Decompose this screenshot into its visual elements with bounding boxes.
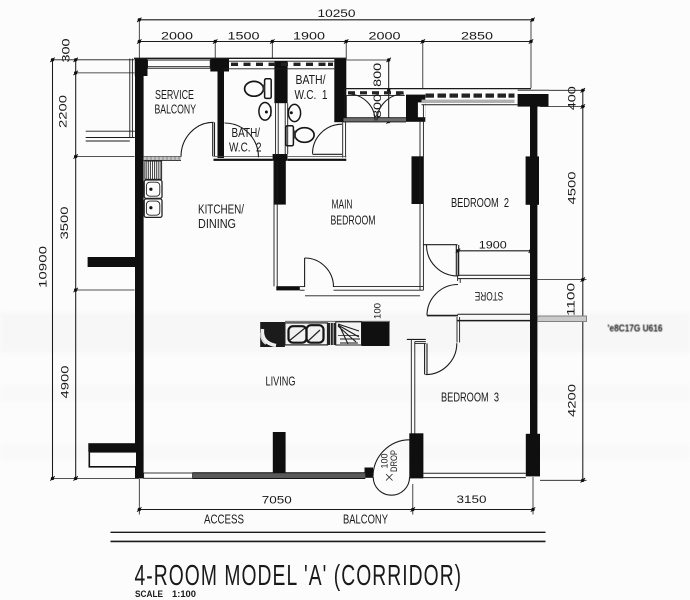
svg-text:10250: 10250 bbox=[318, 8, 356, 20]
svg-text:300: 300 bbox=[61, 39, 73, 63]
svg-text:10900: 10900 bbox=[38, 246, 50, 288]
svg-text:W.C. 1: W.C. 1 bbox=[295, 88, 328, 102]
svg-text:MAIN: MAIN bbox=[332, 198, 353, 212]
svg-text:1500: 1500 bbox=[228, 31, 260, 43]
svg-text:SCALE: SCALE bbox=[135, 589, 163, 600]
svg-text:BEDROOM 2: BEDROOM 2 bbox=[451, 196, 509, 210]
svg-text:3500: 3500 bbox=[59, 207, 71, 240]
svg-text:2000: 2000 bbox=[161, 31, 193, 43]
svg-text:DROP: DROP bbox=[389, 450, 399, 472]
svg-text:2200: 2200 bbox=[58, 95, 70, 128]
svg-text:2000: 2000 bbox=[369, 31, 401, 43]
svg-text:100: 100 bbox=[373, 303, 384, 319]
svg-text:BATH/: BATH/ bbox=[232, 126, 261, 140]
svg-text:BALCONY: BALCONY bbox=[155, 102, 197, 116]
svg-text:'e8C17G U616: 'e8C17G U616 bbox=[608, 324, 663, 335]
svg-text:4500: 4500 bbox=[567, 172, 579, 205]
svg-text:400: 400 bbox=[567, 86, 579, 110]
svg-text:1100: 1100 bbox=[566, 283, 578, 316]
svg-text:BALCONY: BALCONY bbox=[343, 512, 388, 526]
svg-text:LIVING: LIVING bbox=[266, 374, 296, 388]
svg-text:KITCHEN/: KITCHEN/ bbox=[198, 202, 244, 216]
svg-text:800: 800 bbox=[372, 63, 384, 87]
svg-text:STORE: STORE bbox=[475, 289, 504, 301]
svg-text:DINING: DINING bbox=[198, 217, 236, 231]
svg-text:4-ROOM MODEL 'A' (CORRIDOR): 4-ROOM MODEL 'A' (CORRIDOR) bbox=[135, 560, 463, 592]
svg-text:100: 100 bbox=[379, 454, 389, 469]
svg-text:1:100: 1:100 bbox=[172, 589, 196, 600]
svg-text:ACCESS: ACCESS bbox=[204, 512, 244, 526]
svg-text:W.C. 2: W.C. 2 bbox=[229, 141, 262, 155]
svg-text:BEDROOM: BEDROOM bbox=[331, 214, 376, 228]
svg-text:7050: 7050 bbox=[262, 495, 292, 507]
svg-text:4900: 4900 bbox=[60, 366, 72, 399]
svg-text:1900: 1900 bbox=[293, 31, 325, 43]
svg-text:BEDROOM 3: BEDROOM 3 bbox=[441, 391, 499, 405]
svg-text:3150: 3150 bbox=[457, 494, 487, 506]
svg-text:SERVICE: SERVICE bbox=[155, 88, 194, 102]
svg-text:BATH/: BATH/ bbox=[296, 73, 326, 87]
svg-text:2850: 2850 bbox=[461, 31, 493, 43]
svg-text:4200: 4200 bbox=[567, 384, 579, 417]
svg-text:1900: 1900 bbox=[479, 239, 507, 251]
